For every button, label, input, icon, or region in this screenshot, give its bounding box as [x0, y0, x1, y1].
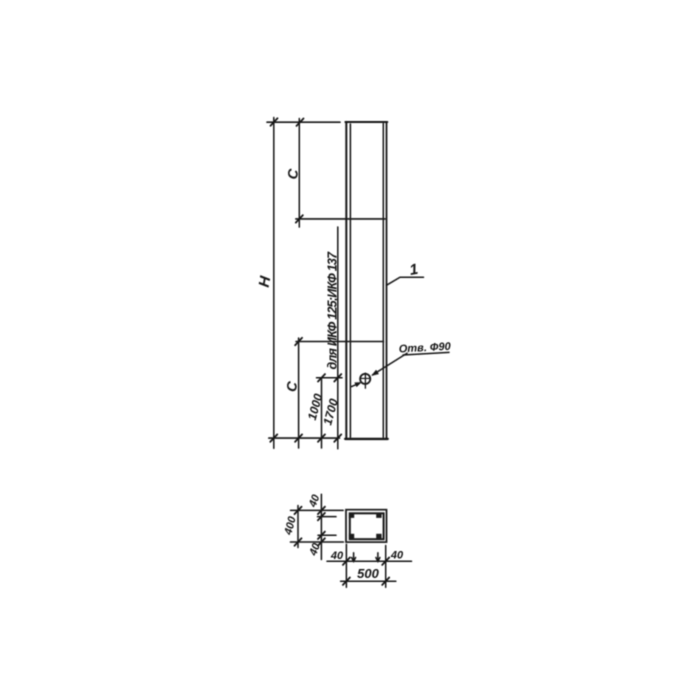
svg-text:500: 500	[357, 566, 379, 581]
svg-text:для ИКФ 125;ИКФ 137: для ИКФ 125;ИКФ 137	[326, 251, 340, 370]
svg-text:40: 40	[330, 550, 344, 562]
svg-text:40: 40	[390, 550, 404, 562]
